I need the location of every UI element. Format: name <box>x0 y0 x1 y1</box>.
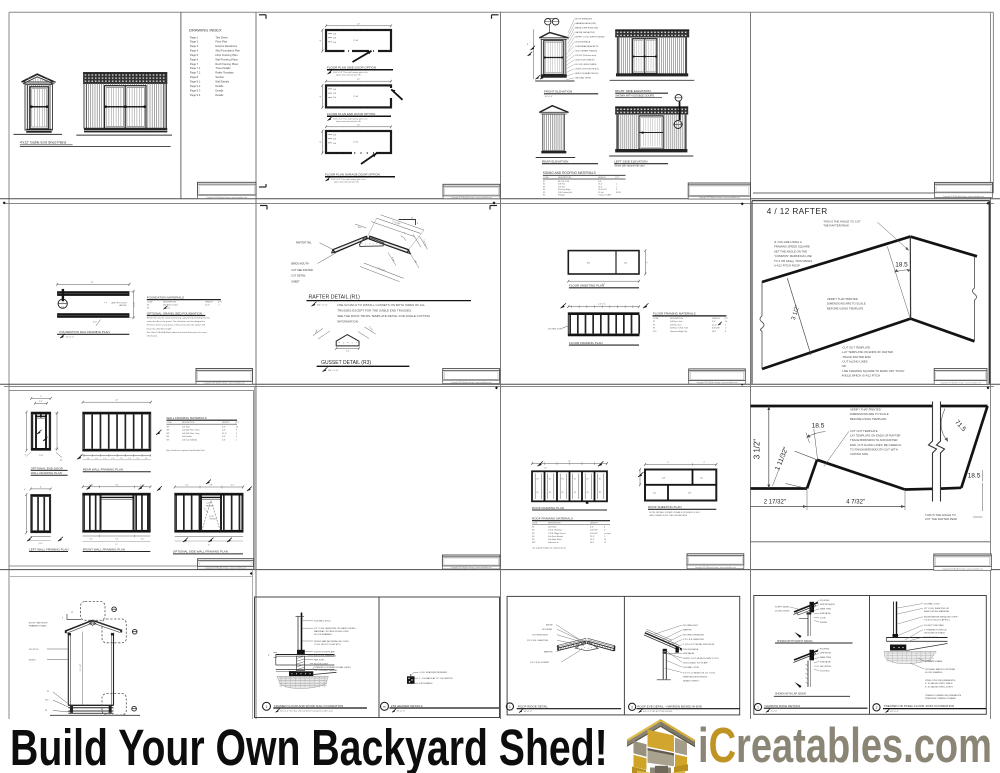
svg-text:Copyright 2013 Big Ben Design: Copyright 2013 Big Ben Design - www.icre… <box>205 566 246 569</box>
svg-text:Shingles: Shingles <box>558 195 565 197</box>
svg-text:SHEET: SHEET <box>291 281 300 284</box>
svg-text:FLOOR FRAMING MATERIALS: FLOOR FRAMING MATERIALS <box>653 312 696 316</box>
svg-text:Wall Details: Wall Details <box>215 80 229 84</box>
svg-text:6'-0": 6'-0" <box>222 439 226 441</box>
svg-text:SUB FACIA: SUB FACIA <box>820 661 831 664</box>
svg-text:Page 9.1: Page 9.1 <box>190 80 201 84</box>
svg-text:O.S.B. (STUCCO LAP ETC): O.S.B. (STUCCO LAP ETC) <box>924 619 950 622</box>
svg-text:8": 8" <box>268 655 270 657</box>
svg-text:Page 1: Page 1 <box>190 35 199 39</box>
svg-text:leave the shed floor height.: leave the shed floor height. <box>147 327 172 330</box>
svg-text:NOTE: INSTALL SCREW OR NAILS O: NOTE: INSTALL SCREW OR NAILS ON SIDES OF… <box>650 511 701 514</box>
svg-text:12'x4': 12'x4' <box>353 96 359 98</box>
svg-text:8'-0": 8'-0" <box>590 527 594 529</box>
svg-text:10'x10'x10': 10'x10'x10' <box>598 189 607 191</box>
svg-text:BOARD OVER IT: BOARD OVER IT <box>683 680 700 683</box>
svg-text:O.S.B. Sheeting: O.S.B. Sheeting <box>548 529 562 532</box>
svg-text:SIDING MAY BE INSTALLED OVER: SIDING MAY BE INSTALLED OVER <box>924 616 958 619</box>
svg-text:1/2 roll: 1/2 roll <box>598 192 604 194</box>
svg-text:Copyright 2013 Big Ben Design: Copyright 2013 Big Ben Design - www.icre… <box>451 196 492 199</box>
svg-text:R5: R5 <box>532 539 534 541</box>
svg-text:1'-4" O.C.: 1'-4" O.C. <box>598 304 607 306</box>
svg-text:See 'How To Build A Shed' eboo: See 'How To Build A Shed' ebook and inst… <box>147 331 208 334</box>
svg-text:5/8": 5/8" <box>357 226 361 229</box>
svg-text:DIMENSIONS ARE TO SCALE: DIMENSIONS ARE TO SCALE <box>850 412 889 416</box>
svg-text:IF YOU ARE USING A: IF YOU ARE USING A <box>774 240 802 244</box>
svg-text:TREATED FOUNDATION RAIL (SKID): TREATED FOUNDATION RAIL (SKID) <box>314 666 351 669</box>
svg-text:Roof Framing Plans: Roof Framing Plans <box>215 62 239 66</box>
svg-text:2X4 BOTTOM PLATE: 2X4 BOTTOM PLATE <box>924 624 945 627</box>
svg-text:4'x8'x1/2": 4'x8'x1/2" <box>590 533 598 535</box>
svg-text:WALL FRAMING PLAN: WALL FRAMING PLAN <box>31 471 62 475</box>
svg-text:12': 12' <box>357 24 360 26</box>
svg-text:18.5: 18.5 <box>968 473 981 480</box>
svg-text:Page 9.3: Page 9.3 <box>190 88 201 92</box>
svg-text:ROOFING: ROOFING <box>542 629 552 631</box>
svg-text:R1: R1 <box>587 479 589 481</box>
svg-text:O.S.B. Ridge Gusset: O.S.B. Ridge Gusset <box>548 532 566 535</box>
svg-text:LINE OF FLOOR: LINE OF FLOOR <box>111 302 127 304</box>
svg-text:2x6: 2x6 <box>333 33 336 35</box>
svg-text:RAFTER: RAFTER <box>544 651 553 654</box>
svg-text:S4: S4 <box>543 189 545 191</box>
svg-text:AND 8 SHEETS BUT THE 2X6 RAFTE: AND 8 SHEETS BUT THE 2X6 RAFTERS <box>650 514 688 517</box>
svg-text:1/4"=1'-0": 1/4"=1'-0" <box>545 96 553 98</box>
svg-text:2: 2 <box>604 536 605 538</box>
svg-text:FLOOR LEVEL INSIDE: FLOOR LEVEL INSIDE <box>575 64 597 66</box>
svg-text:W2: W2 <box>167 430 170 432</box>
svg-text:12: 12 <box>604 542 606 544</box>
svg-text:LEFT WALL FRAMING PLAN: LEFT WALL FRAMING PLAN <box>29 547 68 551</box>
svg-text:CUT DETAIL: CUT DETAIL <box>291 275 306 278</box>
svg-text:16'-0": 16'-0" <box>598 186 603 188</box>
svg-text:SUB FACIA: SUB FACIA <box>683 652 694 655</box>
svg-text:SOFFIT (CUT SIDING DOWN TO FIT: SOFFIT (CUT SIDING DOWN TO FIT) <box>683 658 719 660</box>
svg-text:3/4 Floor O.S.B. T&G: 3/4 Floor O.S.B. T&G <box>670 327 688 330</box>
svg-text:Shown with optional side door: Shown with optional side door <box>614 164 645 167</box>
svg-text:R3: R3 <box>532 533 534 535</box>
svg-text:8: 8 <box>604 527 605 529</box>
svg-text:SET THE ANGLE ON THE: SET THE ANGLE ON THE <box>774 249 807 253</box>
svg-text:METAL DRIP EDGE (R5): METAL DRIP EDGE (R5) <box>575 27 598 30</box>
svg-text:10: 10 <box>725 321 727 323</box>
svg-text:4 / 12 RAFTER: 4 / 12 RAFTER <box>767 207 828 216</box>
svg-text:4': 4' <box>320 141 322 143</box>
svg-text:BIRDS MOUTH: BIRDS MOUTH <box>291 263 309 266</box>
svg-text:1 Square (3 BD): 1 Square (3 BD) <box>598 195 611 197</box>
svg-text:3/4" = 1'-0": 3/4" = 1'-0" <box>317 304 328 306</box>
svg-text:1/2"=1'-0": 1/2"=1'-0" <box>66 337 75 339</box>
svg-text:S1: S1 <box>61 302 64 304</box>
svg-text:FLOOR PLAN GARAGE DOOR OPTION: FLOOR PLAN GARAGE DOOR OPTION <box>325 173 380 177</box>
svg-text:F10: F10 <box>653 331 656 333</box>
svg-text:Page 7.2: Page 7.2 <box>190 71 201 75</box>
svg-text:16'-0": 16'-0" <box>598 184 603 186</box>
svg-text:ROOF SHINGLES: ROOF SHINGLES <box>575 19 592 21</box>
svg-text:STEEL STUD REQUIREMENTS:: STEEL STUD REQUIREMENTS: <box>925 680 956 682</box>
svg-text:R2: R2 <box>532 530 534 532</box>
svg-text:2X4 BOTTOM PLATE: 2X4 BOTTOM PLATE <box>314 650 335 653</box>
svg-text:4: 4 <box>62 618 64 620</box>
svg-text:ROOFING: ROOFING <box>820 648 830 650</box>
svg-text:A 4/12 PITCH ROOF.: A 4/12 PITCH ROOF. <box>774 264 801 268</box>
svg-text:Skid Foundation Plan: Skid Foundation Plan <box>215 49 240 53</box>
svg-text:Sheds that may be constructed: Sheds that may be constructed using a gr… <box>147 317 211 320</box>
svg-text:36 SF: 36 SF <box>616 192 622 194</box>
svg-text:SIDING MAY BE INSTALLED OVER: SIDING MAY BE INSTALLED OVER <box>314 640 349 643</box>
svg-text:4': 4' <box>320 39 322 41</box>
svg-text:TO FINISH BIRDSMOUTH CUT WITH: TO FINISH BIRDSMOUTH CUT WITH <box>850 447 898 451</box>
svg-text:FLOOR FRAMING: FLOOR FRAMING <box>925 671 943 674</box>
svg-text:3"=1'-0": 3"=1'-0" <box>771 711 778 713</box>
svg-text:R1: R1 <box>532 527 534 529</box>
svg-text:O.S.B. (STUCCO LAP ETC): O.S.B. (STUCCO LAP ETC) <box>314 643 341 646</box>
svg-text:CODE: CODE <box>653 318 659 320</box>
svg-text:48 X 96 X 3/8: 48 X 96 X 3/8 <box>558 181 569 183</box>
svg-text:Wall Framing Plans: Wall Framing Plans <box>215 57 238 61</box>
svg-text:GARAGE FACIA (2X6): GARAGE FACIA (2X6) <box>575 22 596 25</box>
svg-text:2: 2 <box>725 328 726 330</box>
svg-text:8: 8 <box>725 331 726 333</box>
svg-text:FRAMING SPEED SQUARE: FRAMING SPEED SQUARE <box>774 245 810 249</box>
svg-text:Firmness levels at any point,: Firmness levels at any point, or floor j… <box>147 324 206 327</box>
svg-text:-LAY TEMPLATE ON ENDS OF RAFTE: -LAY TEMPLATE ON ENDS OF RAFTER <box>842 350 893 354</box>
svg-text:12: 12 <box>71 612 74 614</box>
svg-text:2x6 Door Sill(trim): 2x6 Door Sill(trim) <box>182 438 197 441</box>
svg-text:2X4 STUD: 2X4 STUD <box>820 670 830 672</box>
svg-text:Page 3: Page 3 <box>190 44 199 48</box>
svg-text:2X4 WALL STUD: 2X4 WALL STUD <box>924 602 941 605</box>
svg-text:OPTIONAL END DOOR: OPTIONAL END DOOR <box>31 466 64 470</box>
svg-text:SUB FACIA: SUB FACIA <box>820 612 831 615</box>
svg-text:layout and material take offs: layout and material take offs <box>336 74 361 77</box>
svg-text:ON CRUSHED GRAVEL: ON CRUSHED GRAVEL <box>314 669 338 672</box>
svg-text:-TRACE RAFTER END: -TRACE RAFTER END <box>842 355 871 359</box>
svg-text:CUT SEE RAFTER: CUT SEE RAFTER <box>291 269 313 272</box>
svg-text:10'-0": 10'-0" <box>590 539 595 541</box>
svg-text:1: 1 <box>509 705 511 709</box>
svg-text:FLOOR PLAN END DOOR OPTION: FLOOR PLAN END DOOR OPTION <box>327 112 375 116</box>
svg-text:REAR WALL FRAMING PLAN: REAR WALL FRAMING PLAN <box>83 468 123 472</box>
svg-text:2X4 WALL STUD: 2X4 WALL STUD <box>314 620 331 623</box>
svg-text:FRONT ELEVATION: FRONT ELEVATION <box>544 90 572 94</box>
svg-text:R1: R1 <box>599 479 601 481</box>
svg-text:FRAMED FLOOR AND WOOD RAIL FOU: FRAMED FLOOR AND WOOD RAIL FOUNDATION <box>274 704 343 708</box>
svg-text:3'-10": 3'-10" <box>39 543 44 545</box>
svg-text:Copyright 2013 Big Ben Design: Copyright 2013 Big Ben Design - www.icre… <box>697 381 738 384</box>
svg-text:VERIFY THAT PRINTED: VERIFY THAT PRINTED <box>850 408 881 412</box>
svg-text:O.S.B. SPACER/STIFFENER: O.S.B. SPACER/STIFFENER <box>419 671 447 674</box>
svg-text:R1: R1 <box>549 479 551 481</box>
svg-text:FLOOR FRAMING PLAN: FLOOR FRAMING PLAN <box>569 341 603 345</box>
svg-text:12'-0": 12'-0" <box>222 433 227 435</box>
svg-text:CUT OUT TEMPLATE: CUT OUT TEMPLATE <box>850 429 878 433</box>
svg-text:FLOOR JOIST: FLOOR JOIST <box>314 663 329 665</box>
svg-text:4": 4" <box>24 489 26 491</box>
svg-text:QTY: QTY <box>218 302 223 304</box>
svg-text:2X4 DOUBLE TOP PLATE: 2X4 DOUBLE TOP PLATE <box>683 661 708 664</box>
svg-text:2: 2 <box>876 706 878 710</box>
svg-text:LENGTH: LENGTH <box>205 302 213 304</box>
svg-text:F2: F2 <box>653 324 655 326</box>
svg-text:DRAWING INDEX: DRAWING INDEX <box>189 27 222 32</box>
svg-text:RAKE TRIM: RAKE TRIM <box>820 656 831 659</box>
svg-text:layout and material take offs: layout and material take offs <box>336 120 361 123</box>
svg-text:Truss Details: Truss Details <box>215 66 231 70</box>
svg-text:Page 6: Page 6 <box>190 57 199 61</box>
svg-text:GUSSET DETAIL (R3): GUSSET DETAIL (R3) <box>321 360 371 366</box>
svg-text:2x4 Rafter: 2x4 Rafter <box>548 526 557 529</box>
svg-text:Rafter Template: Rafter Template <box>215 71 234 75</box>
svg-text:1'-4": 1'-4" <box>346 350 350 352</box>
svg-text:Copyright 2013 Big Ben Design: Copyright 2013 Big Ben Design - www.icre… <box>695 566 736 569</box>
svg-text:R4: R4 <box>532 536 534 538</box>
svg-text:OPTIONAL GRAVEL BED FOUNDATION: OPTIONAL GRAVEL BED FOUNDATION <box>147 311 202 315</box>
svg-text:Use asphalt shingles for roofi: Use asphalt shingles for roofing materia… <box>532 547 566 550</box>
svg-text:S6: S6 <box>543 195 545 197</box>
svg-text:R2: R2 <box>60 460 62 462</box>
svg-text:10: 10 <box>604 539 606 541</box>
svg-text:-CUT OUT TEMPLATE: -CUT OUT TEMPLATE <box>842 346 871 350</box>
svg-text:DESCRIPTION: DESCRIPTION <box>670 318 684 320</box>
svg-text:4': 4' <box>703 462 705 464</box>
svg-text:12'x4': 12'x4' <box>353 40 359 42</box>
svg-text:F3: F3 <box>653 328 655 330</box>
svg-text:R2: R2 <box>537 492 539 494</box>
svg-text:Roof Drip Edge: Roof Drip Edge <box>558 189 570 191</box>
svg-text:1/2" O.S.B. SHEETING OR: 1/2" O.S.B. SHEETING OR <box>924 608 950 610</box>
svg-text:1/2 O.S.B. SHEETING: 1/2 O.S.B. SHEETING <box>527 640 549 642</box>
svg-text:ABOVE: ABOVE <box>119 304 127 307</box>
svg-text:12'-0": 12'-0" <box>590 536 595 538</box>
svg-text:TRACE BIRDSMOUTH AND RAFTER: TRACE BIRDSMOUTH AND RAFTER <box>850 438 898 442</box>
svg-text:6: 6 <box>236 430 237 432</box>
svg-text:Floor Framing Plan: Floor Framing Plan <box>215 53 238 57</box>
svg-text:SHOWN WITH DOUBLE DOORS: SHOWN WITH DOUBLE DOORS <box>615 93 654 97</box>
svg-text:4'x8'x1/2": 4'x8'x1/2" <box>590 530 598 532</box>
svg-text:Copyright 2013 Big Ben Design: Copyright 2013 Big Ben Design - www.icre… <box>206 196 247 199</box>
svg-text:R2: R2 <box>574 492 576 494</box>
svg-text:Floor Plan: Floor Plan <box>215 40 227 44</box>
svg-text:ROOFING: ROOFING <box>820 600 830 602</box>
svg-text:information.: information. <box>147 334 158 337</box>
svg-text:INFORMATION: INFORMATION <box>337 320 358 324</box>
svg-text:1: 1 <box>236 439 237 441</box>
svg-text:Details: Details <box>215 84 224 88</box>
svg-text:Page 7.1: Page 7.1 <box>190 66 201 70</box>
svg-text:SHOWN WITH LAP SIDING: SHOWN WITH LAP SIDING <box>775 693 806 696</box>
svg-text:9.2: 9.2 <box>61 306 64 308</box>
svg-text:TREATED OR STEEL FLOOR JOIST F: TREATED OR STEEL FLOOR JOIST FOUNDATION <box>884 704 954 708</box>
svg-text:2x6: 2x6 <box>333 89 336 91</box>
svg-text:3/4"=1'-0" See floor and fou: 3/4"=1'-0" See floor and foundation fram… <box>280 710 333 713</box>
svg-text:Drip Edge Metal: Drip Edge Metal <box>548 538 562 541</box>
svg-text:S2: S2 <box>543 184 545 186</box>
svg-text:4': 4' <box>40 396 42 398</box>
svg-text:DESCRIPTION: DESCRIPTION <box>163 302 177 304</box>
svg-text:1/2 O.S.B. GUSSET: 1/2 O.S.B. GUSSET <box>530 662 550 664</box>
svg-text:2'-0": 2'-0" <box>544 468 548 470</box>
svg-text:3 1/4": 3 1/4" <box>368 326 373 332</box>
svg-text:4X6 Skid, treated: 4X6 Skid, treated <box>163 304 178 307</box>
svg-text:SKID FOUNDATION (S1): SKID FOUNDATION (S1) <box>575 72 598 75</box>
svg-text:2-2x4: 2-2x4 <box>206 503 211 505</box>
svg-text:2X4 SUB FACIA: 2X4 SUB FACIA <box>575 40 591 43</box>
svg-text:S3: S3 <box>543 186 545 188</box>
svg-text:R12: R12 <box>532 542 535 544</box>
svg-text:WALL FRAMING MATERIALS: WALL FRAMING MATERIALS <box>166 416 206 420</box>
svg-text:F1: F1 <box>47 691 49 693</box>
svg-text:FLOOR PLAN SIDE DOOR OPTION: FLOOR PLAN SIDE DOOR OPTION <box>327 66 376 70</box>
svg-text:Copyright 2013 Big Ben Design: Copyright 2013 Big Ben Design - www.icre… <box>451 566 492 569</box>
svg-text:2x6: 2x6 <box>333 139 336 141</box>
svg-text:6'-0": 6'-0" <box>222 436 226 438</box>
svg-text:2'-2": 2'-2" <box>39 401 43 403</box>
svg-text:FOUNDATION RAIL FRAMING PLAN: FOUNDATION RAIL FRAMING PLAN <box>59 330 109 334</box>
svg-text:RIDGE: RIDGE <box>546 624 553 626</box>
svg-text:FRAMING PLANS: FRAMING PLANS <box>29 624 47 627</box>
svg-text:4X4 DOOR TRIM (P): 4X4 DOOR TRIM (P) <box>575 59 595 61</box>
svg-text:2x4 Wall Plate, Long: 2x4 Wall Plate, Long <box>182 432 199 435</box>
svg-text:4x8: 4x8 <box>688 493 691 495</box>
svg-text:USE 6d NAILS TO INSTALL GUSSET: USE 6d NAILS TO INSTALL GUSSETS ON BOTH … <box>337 303 425 307</box>
svg-text:4: 4 <box>417 223 419 225</box>
svg-text:BEFORE USING TEMPLATE: BEFORE USING TEMPLATE <box>827 306 864 310</box>
svg-text:12': 12' <box>357 125 360 127</box>
svg-text:REAR ELEVATION: REAR ELEVATION <box>542 159 568 163</box>
svg-text:STOOP (2x4 trim area): STOOP (2x4 trim area) <box>575 54 596 57</box>
svg-text:3/4"=1'-0" NO BOTTOM CHORD: 3/4"=1'-0" NO BOTTOM CHORD <box>643 711 673 713</box>
svg-text:12': 12' <box>91 282 94 284</box>
svg-text:layout and material take offs: layout and material take offs <box>334 181 359 184</box>
svg-text:2x6: 2x6 <box>333 97 336 99</box>
svg-text:32: 32 <box>236 427 238 429</box>
svg-text:S1: S1 <box>45 710 47 712</box>
svg-text:FLOOR JOIST: FLOOR JOIST <box>924 637 938 639</box>
svg-text:-CUT ALONG LINES: -CUT ALONG LINES <box>842 359 868 363</box>
svg-text:Copyright 2013 Big Ben Design: Copyright 2013 Big Ben Design - www.icre… <box>204 381 245 384</box>
svg-text:SEE THE ROOF TRUSS TEMPLATE DE: SEE THE ROOF TRUSS TEMPLATE DETAIL FOR A… <box>337 314 430 318</box>
svg-text:4'x8'x3/4": 4'x8'x3/4" <box>712 328 720 330</box>
svg-text:RIGHT SIDE ELEVATION: RIGHT SIDE ELEVATION <box>615 89 650 93</box>
svg-text:OR: OR <box>842 364 846 368</box>
svg-text:TREATED LUMBER REQUIREMENTS: TREATED LUMBER REQUIREMENTS <box>925 694 962 697</box>
svg-text:Hurricane Angle Clip: Hurricane Angle Clip <box>670 330 687 333</box>
svg-text:Details: Details <box>215 93 224 97</box>
svg-text:6'-0": 6'-0" <box>115 539 119 541</box>
svg-text:END. CUT ALONG LINES. BE CAREF: END. CUT ALONG LINES. BE CAREFUL <box>850 443 902 447</box>
svg-text:2X6: 2X6 <box>45 700 48 702</box>
svg-text:GROUND LEVEL: GROUND LEVEL <box>575 78 592 80</box>
svg-text:18.5: 18.5 <box>812 423 825 430</box>
svg-text:2 17/32": 2 17/32" <box>764 500 786 506</box>
svg-text:4'x12' Gable End Shed Plans: 4'x12' Gable End Shed Plans <box>20 141 67 145</box>
svg-text:S1: S1 <box>543 181 545 183</box>
svg-text:4x8: 4x8 <box>662 478 665 480</box>
svg-text:Copyright 2013 Big Ben Design: Copyright 2013 Big Ben Design - www.icre… <box>699 196 740 199</box>
svg-text:4'x8': 4'x8' <box>598 181 602 183</box>
svg-text:12': 12' <box>115 544 118 546</box>
svg-text:12': 12' <box>568 461 571 463</box>
svg-text:HEADER: HEADER <box>206 505 214 508</box>
svg-text:8'-0": 8'-0" <box>222 427 226 429</box>
svg-text:W4: W4 <box>167 436 170 438</box>
svg-text:CODE: CODE <box>147 302 153 304</box>
svg-text:iCreatables.com: iCreatables.com <box>698 718 992 773</box>
svg-text:15lb. Roofing Felt: 15lb. Roofing Felt <box>558 191 573 194</box>
svg-text:Details: Details <box>215 88 224 92</box>
svg-text:1: 1 <box>757 706 759 710</box>
svg-text:4'-0": 4'-0" <box>222 430 226 432</box>
svg-text:4': 4' <box>320 95 322 97</box>
svg-text:ANGLE WHICH IS 4/12 PITCH: ANGLE WHICH IS 4/12 PITCH <box>842 373 881 377</box>
svg-text:8'-0": 8'-0" <box>115 484 119 486</box>
svg-text:2X4 BLOCKING: 2X4 BLOCKING <box>775 610 790 612</box>
svg-text:R2: R2 <box>599 492 601 494</box>
svg-text:Note: Studs face acquires Deta: Note: Studs face acquires Detail Double … <box>166 449 204 452</box>
svg-text:1: 1 <box>616 186 617 188</box>
svg-text:ROOF RIDGE DETAIL: ROOF RIDGE DETAIL <box>518 705 548 709</box>
svg-text:Page 9.2: Page 9.2 <box>190 84 201 88</box>
svg-text:4': 4' <box>40 487 42 489</box>
svg-text:FLOOR FRAMING: FLOOR FRAMING <box>314 633 332 636</box>
svg-text:Copyright 2013 Big Ben Design: Copyright 2013 Big Ben Design - www.icre… <box>943 195 984 198</box>
svg-text:RAKE TRIM: RAKE TRIM <box>820 608 831 611</box>
svg-text:4x8: 4x8 <box>587 262 591 264</box>
svg-text:8': 8' <box>527 44 529 46</box>
svg-text:4x4: 4x4 <box>624 262 627 264</box>
svg-text:SIDING: SIDING <box>820 622 827 624</box>
svg-text:Copyright 2013 Big Ben Design: Copyright 2013 Big Ben Design - www.icre… <box>451 381 492 384</box>
svg-text:R1: R1 <box>537 479 539 481</box>
svg-text:SOFFIT O.S.B. SOFFIT SIDING: SOFFIT O.S.B. SOFFIT SIDING <box>575 37 605 39</box>
svg-text:CUT THE RAFTER PEAK: CUT THE RAFTER PEAK <box>925 517 957 521</box>
svg-text:2x6: 2x6 <box>333 42 336 44</box>
svg-text:1/2" TO 2x SIDING OR 1/2" O.S.: 1/2" TO 2x SIDING OR 1/2" O.S.B. <box>683 672 716 674</box>
svg-text:7'-6 1/2": 7'-6 1/2" <box>377 268 386 273</box>
svg-text:3: 3 <box>616 189 617 191</box>
svg-text:-USE FRAMING SQUARE TO MARK OF: -USE FRAMING SQUARE TO MARK OFF 'TICKS' <box>842 369 905 373</box>
svg-text:Hurricane tie: Hurricane tie <box>548 541 559 544</box>
svg-text:2X6 SUB FACIA: 2X6 SUB FACIA <box>683 648 699 651</box>
svg-text:Build Your Own Backyard Shed!: Build Your Own Backyard Shed! <box>10 719 608 773</box>
svg-text:R1: R1 <box>574 479 576 481</box>
svg-text:DRIP EDGE: DRIP EDGE <box>820 653 832 655</box>
svg-text:2x6: 2x6 <box>333 93 336 95</box>
svg-text:2x4 Stud: 2x4 Stud <box>182 426 189 429</box>
svg-text:2x6: 2x6 <box>333 38 336 40</box>
svg-text:FLOOR SHEETING PLAN: FLOOR SHEETING PLAN <box>569 284 604 288</box>
svg-text:W1: W1 <box>167 427 170 429</box>
svg-text:Soff Trim: Soff Trim <box>558 184 566 186</box>
svg-text:1: 1 <box>266 705 268 709</box>
svg-text:4'-2": 4'-2" <box>185 485 189 487</box>
svg-text:12'x4': 12'x4' <box>353 141 359 143</box>
svg-text:Page 8: Page 8 <box>190 75 199 79</box>
svg-text:ROOFING FELT: ROOFING FELT <box>533 634 549 636</box>
svg-text:2x6: 2x6 <box>333 143 336 145</box>
svg-text:2: 2 <box>236 436 237 438</box>
svg-text:BEFORE USING TEMPLATE: BEFORE USING TEMPLATE <box>850 417 887 421</box>
svg-text:Page 9.4: Page 9.4 <box>190 93 201 97</box>
svg-text:12': 12' <box>115 400 118 402</box>
svg-text:3'-10": 3'-10" <box>134 302 136 307</box>
svg-text:2x6 Floor Joist: 2x6 Floor Joist <box>670 320 683 323</box>
svg-text:4'-0": 4'-0" <box>712 321 716 323</box>
svg-text:DRIP EDGE(R5): DRIP EDGE(R5) <box>820 604 835 606</box>
svg-text:W5: W5 <box>167 439 170 441</box>
svg-text:12'-0": 12'-0" <box>712 324 717 326</box>
